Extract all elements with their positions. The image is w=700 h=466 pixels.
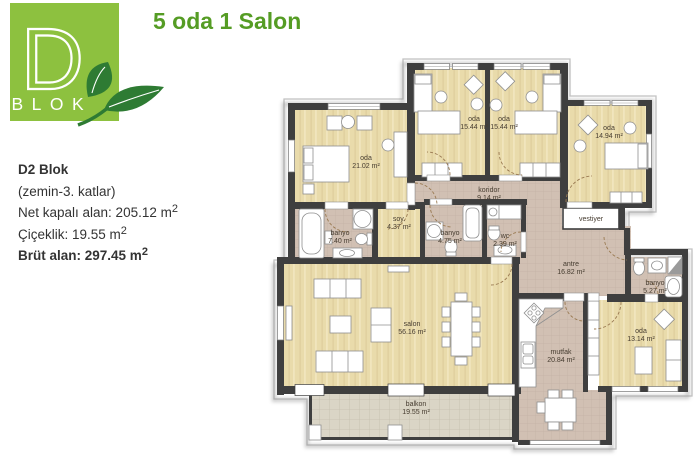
svg-text:banyo: banyo: [645, 280, 664, 287]
svg-text:mutfak: mutfak: [550, 349, 572, 356]
svg-text:salon: salon: [404, 321, 421, 328]
svg-text:14.94 m²: 14.94 m²: [595, 133, 623, 140]
svg-text:balkon: balkon: [406, 401, 427, 408]
svg-text:15.44 m²: 15.44 m²: [490, 124, 518, 131]
svg-text:15.44 m²: 15.44 m²: [460, 124, 488, 131]
svg-text:banyo: banyo: [440, 230, 459, 237]
svg-text:oda: oda: [603, 125, 615, 132]
svg-text:21.02 m²: 21.02 m²: [352, 163, 380, 170]
svg-text:oda: oda: [498, 116, 510, 123]
svg-text:banyo: banyo: [330, 230, 349, 237]
svg-text:16.82 m²: 16.82 m²: [557, 269, 585, 276]
svg-text:9.14 m²: 9.14 m²: [477, 195, 501, 202]
svg-text:wc: wc: [500, 233, 510, 240]
svg-text:vestiyer: vestiyer: [579, 216, 604, 223]
svg-text:2.39 m²: 2.39 m²: [493, 241, 517, 248]
svg-text:soy.: soy.: [393, 216, 405, 223]
svg-text:7.40 m²: 7.40 m²: [328, 238, 352, 245]
svg-text:koridor: koridor: [478, 187, 500, 194]
svg-text:20.84 m²: 20.84 m²: [547, 357, 575, 364]
svg-text:4.37 m²: 4.37 m²: [387, 224, 411, 231]
svg-text:oda: oda: [360, 155, 372, 162]
svg-text:oda: oda: [635, 328, 647, 335]
svg-text:56.16 m²: 56.16 m²: [398, 329, 426, 336]
svg-text:13.14 m²: 13.14 m²: [627, 336, 655, 343]
svg-text:antre: antre: [563, 261, 579, 268]
svg-text:5.27 m²: 5.27 m²: [643, 288, 667, 295]
svg-text:19.55 m²: 19.55 m²: [402, 409, 430, 416]
svg-text:oda: oda: [468, 116, 480, 123]
svg-text:4.75 m²: 4.75 m²: [438, 238, 462, 245]
